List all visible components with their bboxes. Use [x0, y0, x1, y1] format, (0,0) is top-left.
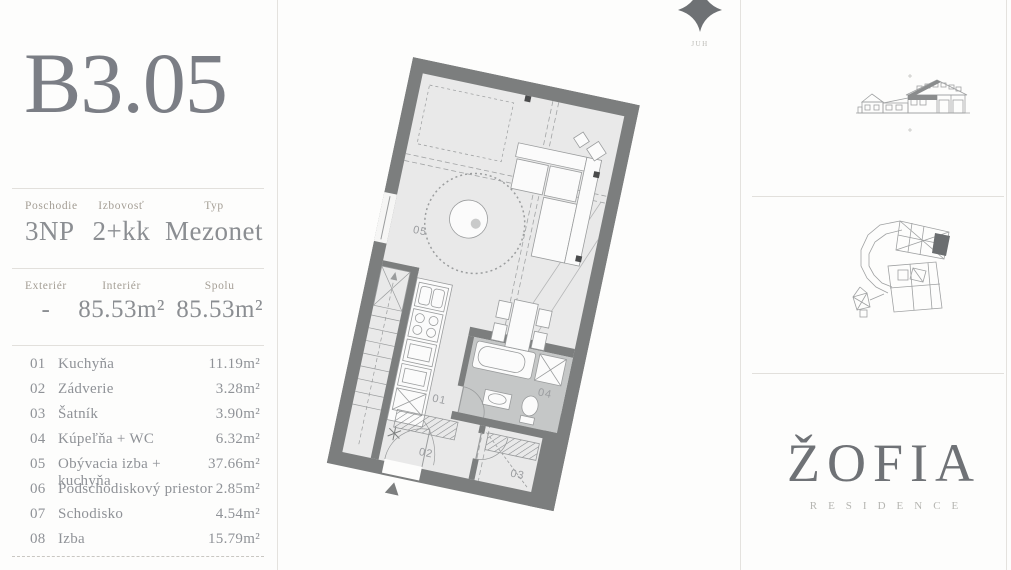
stat-total: Spolu 85.53m² — [176, 280, 263, 324]
divider — [12, 188, 264, 189]
floor-overview-thumbnail — [840, 208, 970, 331]
right-column-divider — [740, 0, 741, 570]
room-area: 11.19m² — [209, 356, 260, 373]
room-number: 01 — [30, 356, 54, 373]
stat-value: 85.53m² — [176, 296, 263, 324]
divider — [752, 373, 1004, 374]
room-list: 01 Kuchyňa 11.19m² 02 Zádverie 3.28m² 03… — [30, 356, 260, 556]
brand-name: ŽOFIA — [762, 432, 1006, 494]
brand-subtitle: RESIDENCE — [762, 500, 1006, 512]
unit-stats: Poschodie 3NP Izbovosť 2+kk Typ Mezonet — [25, 200, 263, 247]
room-area: 37.66m² — [208, 456, 260, 473]
room-name: Šatník — [54, 406, 216, 423]
room-row: 02 Zádverie 3.28m² — [30, 381, 260, 406]
page-edge-divider — [1006, 0, 1007, 570]
divider — [752, 196, 1004, 197]
divider — [12, 268, 264, 269]
floor-plan: 05 01 02 03 04 — [322, 57, 640, 536]
stat-label: Poschodie — [25, 200, 78, 212]
building-elevation-icon — [842, 58, 974, 138]
room-row: 03 Šatník 3.90m² — [30, 406, 260, 431]
room-number: 08 — [30, 531, 54, 548]
stat-value: 3NP — [25, 216, 78, 247]
divider — [12, 345, 264, 346]
room-number: 05 — [30, 456, 54, 473]
room-row: 08 Izba 15.79m² — [30, 531, 260, 556]
room-name: Izba — [54, 531, 208, 548]
stat-label: Exteriér — [25, 280, 67, 292]
room-number: 04 — [30, 431, 54, 448]
area-stats: Exteriér - Interiér 85.53m² Spolu 85.53m… — [25, 280, 263, 324]
stat-label: Izbovosť — [92, 200, 150, 212]
stat-value: - — [25, 296, 67, 324]
dashed-divider — [12, 556, 264, 557]
site-plan-icon — [840, 208, 970, 326]
sidebar-divider — [277, 0, 278, 570]
room-area: 3.90m² — [216, 406, 260, 423]
compass-icon — [676, 0, 724, 34]
room-number: 02 — [30, 381, 54, 398]
compass-direction: JUH — [676, 40, 724, 48]
sidebar: B3.05 Poschodie 3NP Izbovosť 2+kk Typ Me… — [0, 0, 277, 570]
stat-label: Typ — [165, 200, 263, 212]
floorplan-sheet: B3.05 Poschodie 3NP Izbovosť 2+kk Typ Me… — [0, 0, 1011, 570]
room-name: Kuchyňa — [54, 356, 209, 373]
room-row: 07 Schodisko 4.54m² — [30, 506, 260, 531]
room-area: 6.32m² — [216, 431, 260, 448]
stat-label: Spolu — [176, 280, 263, 292]
unit-title: B3.05 — [24, 40, 227, 126]
stat-interior: Interiér 85.53m² — [78, 280, 165, 324]
room-name: Zádverie — [54, 381, 216, 398]
room-area: 15.79m² — [208, 531, 260, 548]
room-name: Kúpeľňa + WC — [54, 431, 216, 448]
room-area: 2.85m² — [216, 481, 260, 498]
room-area: 3.28m² — [216, 381, 260, 398]
stat-floor: Poschodie 3NP — [25, 200, 78, 247]
floor-plan-drawing: 05 01 02 03 04 — [322, 57, 640, 536]
room-row: 05 Obývacia izba + kuchyňa 37.66m² — [30, 456, 260, 481]
stat-value: 85.53m² — [78, 296, 165, 324]
room-name: Podschodiskový priestor — [54, 481, 216, 498]
brand-logo: ŽOFIA RESIDENCE — [762, 432, 1006, 512]
room-area: 4.54m² — [216, 506, 260, 523]
stat-value: Mezonet — [165, 216, 263, 247]
building-elevation-thumbnail — [842, 58, 974, 143]
compass: JUH — [676, 0, 724, 44]
room-row: 01 Kuchyňa 11.19m² — [30, 356, 260, 381]
stat-exterior: Exteriér - — [25, 280, 67, 324]
room-row: 04 Kúpeľňa + WC 6.32m² — [30, 431, 260, 456]
stat-label: Interiér — [78, 280, 165, 292]
room-number: 03 — [30, 406, 54, 423]
room-row: 06 Podschodiskový priestor 2.85m² — [30, 481, 260, 506]
stat-rooms: Izbovosť 2+kk — [92, 200, 150, 247]
room-number: 07 — [30, 506, 54, 523]
room-name: Schodisko — [54, 506, 216, 523]
room-number: 06 — [30, 481, 54, 498]
stat-value: 2+kk — [92, 216, 150, 247]
stat-type: Typ Mezonet — [165, 200, 263, 247]
